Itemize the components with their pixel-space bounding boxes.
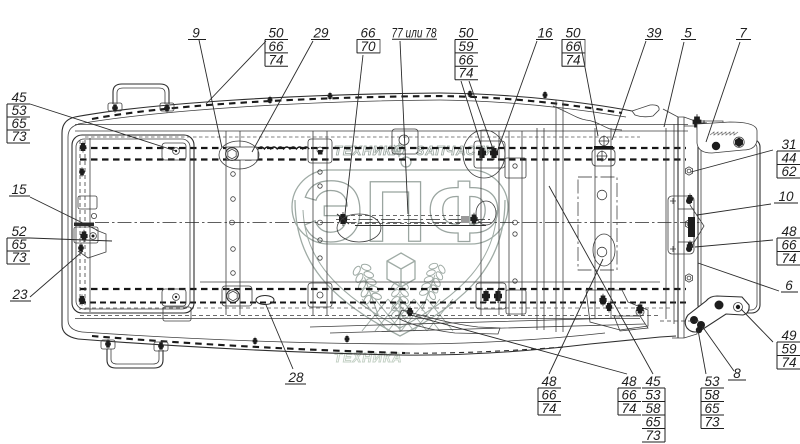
svg-text:15: 15 — [11, 182, 27, 197]
svg-text:74: 74 — [268, 52, 283, 67]
svg-text:5: 5 — [684, 26, 692, 41]
svg-text:74: 74 — [458, 66, 473, 81]
svg-text:74: 74 — [621, 401, 636, 416]
svg-text:73: 73 — [704, 415, 720, 430]
svg-text:23: 23 — [11, 287, 28, 302]
svg-text:74: 74 — [541, 401, 556, 416]
svg-text:74: 74 — [565, 52, 580, 67]
svg-text:39: 39 — [646, 26, 662, 41]
svg-text:16: 16 — [537, 26, 553, 41]
svg-text:62: 62 — [781, 164, 797, 179]
svg-text:73: 73 — [11, 250, 27, 265]
svg-text:29: 29 — [312, 26, 329, 41]
svg-text:7: 7 — [739, 26, 747, 41]
svg-text:74: 74 — [781, 251, 796, 266]
svg-text:73: 73 — [645, 428, 661, 443]
svg-text:10: 10 — [778, 189, 794, 204]
svg-text:70: 70 — [360, 39, 376, 54]
svg-text:74: 74 — [781, 355, 796, 370]
svg-text:77 или 78: 77 или 78 — [392, 26, 437, 41]
svg-text:73: 73 — [11, 129, 27, 144]
svg-text:28: 28 — [287, 370, 304, 385]
svg-text:8: 8 — [733, 366, 741, 381]
svg-text:ЭПФ: ЭПФ — [302, 164, 501, 260]
svg-text:9: 9 — [192, 26, 200, 41]
svg-text:6: 6 — [785, 278, 793, 293]
